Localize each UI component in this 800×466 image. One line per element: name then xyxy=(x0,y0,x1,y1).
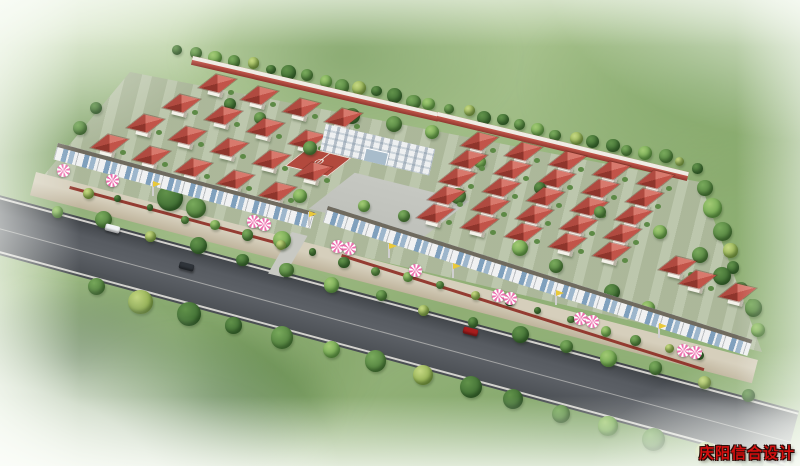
tree xyxy=(324,277,339,292)
villa-bush xyxy=(490,148,496,153)
villa-house xyxy=(555,233,585,259)
villa-house xyxy=(301,162,331,188)
umbrella-icon xyxy=(331,240,344,253)
villa-bush xyxy=(270,102,276,107)
tree xyxy=(210,220,220,230)
umbrella-icon xyxy=(677,344,690,357)
tree xyxy=(145,231,156,242)
tree xyxy=(697,180,713,196)
villa-house xyxy=(259,150,289,176)
tree xyxy=(621,145,632,156)
villa-bush xyxy=(204,174,210,179)
villa-bush xyxy=(622,177,628,182)
tree xyxy=(630,335,641,346)
villa-bush xyxy=(192,110,198,115)
villa-bush xyxy=(512,194,518,199)
tree xyxy=(293,189,307,203)
tree xyxy=(606,139,619,152)
tree xyxy=(186,198,206,218)
villa-house xyxy=(169,94,199,120)
villa-house xyxy=(685,270,715,296)
watermark-text: 庆阳信合设计 xyxy=(699,442,795,463)
villa-house xyxy=(423,204,453,230)
tree xyxy=(742,389,755,402)
tree xyxy=(303,141,317,155)
umbrella-icon xyxy=(57,164,70,177)
tree xyxy=(73,121,87,135)
villa-bush xyxy=(534,239,540,244)
tree xyxy=(276,240,286,250)
villa-house xyxy=(217,138,247,164)
tree xyxy=(358,200,370,212)
tree xyxy=(713,222,732,241)
umbrella-icon xyxy=(343,242,356,255)
villa-bush xyxy=(578,167,584,172)
villa-bush xyxy=(534,158,540,163)
villa-house xyxy=(133,114,163,140)
tree xyxy=(422,98,434,110)
tree xyxy=(512,326,529,343)
tree xyxy=(398,210,410,222)
tree xyxy=(309,248,316,255)
tree xyxy=(703,198,722,217)
umbrella-icon xyxy=(409,264,422,277)
villa-bush xyxy=(479,166,485,171)
villa-bush xyxy=(234,122,240,127)
tree xyxy=(649,361,662,374)
tree xyxy=(444,104,454,114)
umbrella-icon xyxy=(574,312,587,325)
villa-bush xyxy=(501,212,507,217)
villa-house xyxy=(467,214,497,240)
umbrella-icon xyxy=(258,218,271,231)
villa-house xyxy=(599,242,629,268)
tree xyxy=(692,163,702,173)
tree xyxy=(534,307,541,314)
villa-bush xyxy=(556,203,562,208)
flag-icon xyxy=(555,291,557,305)
tree xyxy=(236,254,248,266)
umbrella-icon xyxy=(504,292,517,305)
tree xyxy=(514,119,526,131)
tree xyxy=(425,125,439,139)
flag-icon xyxy=(308,212,310,226)
umbrella-icon xyxy=(492,289,505,302)
villa-bush xyxy=(457,202,463,207)
tree xyxy=(279,263,293,277)
villa-bush xyxy=(198,142,204,147)
tree xyxy=(468,317,479,328)
villa-bush xyxy=(468,184,474,189)
flag-icon xyxy=(152,182,154,196)
aerial-rendering: 庆阳信合设计 xyxy=(0,0,800,466)
villa-bush xyxy=(228,90,234,95)
villa-bush xyxy=(120,150,126,155)
villa-bush xyxy=(644,222,650,227)
tree xyxy=(570,132,583,145)
villa-bush xyxy=(156,130,162,135)
tree xyxy=(248,57,259,68)
tree xyxy=(552,405,570,423)
villa-house xyxy=(289,98,319,124)
tree xyxy=(376,290,387,301)
villa-bush xyxy=(567,185,573,190)
villa-bush xyxy=(490,230,496,235)
villa-bush xyxy=(446,220,452,225)
tree xyxy=(338,257,349,268)
tree xyxy=(601,326,611,336)
villa-house xyxy=(253,118,283,144)
villa-house xyxy=(211,106,241,132)
villa-bush xyxy=(633,240,639,245)
villa-house xyxy=(247,86,277,112)
villa-bush xyxy=(545,221,551,226)
villa-bush xyxy=(354,124,360,129)
villa-house xyxy=(175,126,205,152)
umbrella-icon xyxy=(689,346,702,359)
tree xyxy=(386,116,402,132)
tree xyxy=(181,216,189,224)
tree xyxy=(460,376,483,399)
tree xyxy=(512,240,528,256)
villa-bush xyxy=(578,249,584,254)
villa-house xyxy=(205,74,235,100)
tree xyxy=(653,225,667,239)
tree xyxy=(549,259,563,273)
tree xyxy=(190,237,207,254)
tree xyxy=(745,299,763,317)
tree xyxy=(371,86,382,97)
tree xyxy=(600,350,617,367)
villa-bush xyxy=(312,114,318,119)
villa-bush xyxy=(611,195,617,200)
tree xyxy=(147,204,154,211)
villa-bush xyxy=(324,178,330,183)
flag-icon xyxy=(658,324,660,338)
villa-bush xyxy=(655,204,661,209)
umbrella-icon xyxy=(106,174,119,187)
villa-bush xyxy=(162,162,168,167)
tree xyxy=(242,229,253,240)
villa-bush xyxy=(240,154,246,159)
villa-bush xyxy=(282,166,288,171)
tree xyxy=(698,376,711,389)
tree xyxy=(83,188,94,199)
tree xyxy=(365,350,387,372)
tree xyxy=(665,344,674,353)
villa-bush xyxy=(523,176,529,181)
tree xyxy=(497,114,508,125)
villa-bush xyxy=(589,231,595,236)
umbrella-icon xyxy=(586,315,599,328)
tree xyxy=(598,416,617,435)
flag-icon xyxy=(388,244,390,258)
tree xyxy=(90,102,102,114)
tree xyxy=(723,243,737,257)
tree xyxy=(413,365,433,385)
villa-bush xyxy=(708,286,714,291)
tree xyxy=(52,206,63,217)
villa-bush xyxy=(622,258,628,263)
flag-icon xyxy=(452,264,454,278)
villa-bush xyxy=(246,186,252,191)
villa-bush xyxy=(276,134,282,139)
tree xyxy=(301,69,313,81)
villa-bush xyxy=(666,186,672,191)
